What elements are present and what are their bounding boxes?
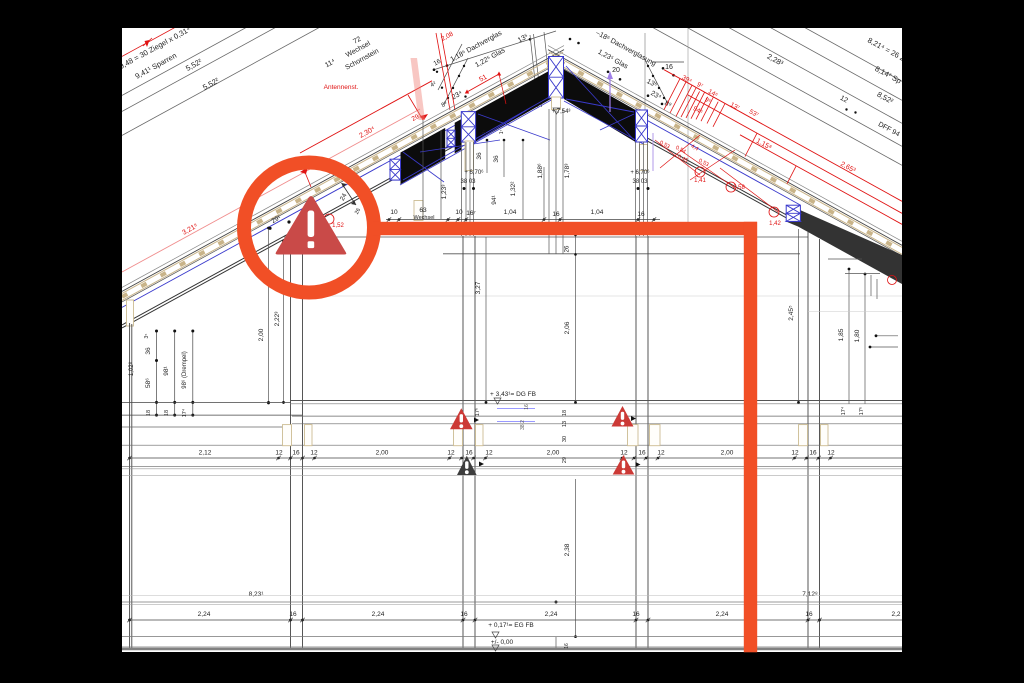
svg-text:26: 26 — [565, 245, 571, 252]
svg-text:10: 10 — [390, 209, 398, 216]
svg-text:+ 3,43¹= DG FB: + 3,43¹= DG FB — [490, 391, 536, 398]
svg-text:63: 63 — [419, 207, 427, 214]
svg-text:1,52: 1,52 — [332, 223, 344, 229]
svg-text:1,88⁶: 1,88⁶ — [537, 163, 544, 179]
svg-text:16: 16 — [805, 611, 813, 618]
svg-text:3,27: 3,27 — [475, 281, 482, 294]
svg-text:36: 36 — [493, 155, 500, 163]
svg-text:2,2: 2,2 — [891, 611, 900, 618]
svg-text:16: 16 — [638, 450, 646, 457]
svg-text:1,42: 1,42 — [769, 221, 781, 227]
svg-text:1,23³: 1,23³ — [441, 184, 448, 200]
svg-text:98⁶ (Drempel): 98⁶ (Drempel) — [181, 351, 188, 388]
svg-text:2,00: 2,00 — [721, 450, 734, 457]
svg-text:8,23¹: 8,23¹ — [249, 591, 265, 598]
svg-text:2,00: 2,00 — [376, 450, 389, 457]
svg-text:+ 6,70⁶: + 6,70⁶ — [464, 169, 484, 176]
svg-text:Antennenst.: Antennenst. — [324, 84, 359, 91]
svg-text:1,32²: 1,32² — [510, 181, 517, 197]
svg-text:16: 16 — [809, 450, 817, 457]
svg-text:12: 12 — [310, 450, 318, 457]
svg-text:16: 16 — [524, 404, 530, 410]
svg-text:2,00: 2,00 — [547, 450, 560, 457]
svg-text:2,22³: 2,22³ — [274, 311, 281, 327]
svg-text:1,80: 1,80 — [854, 329, 861, 342]
svg-text:16: 16 — [564, 643, 570, 649]
svg-text:2,24: 2,24 — [198, 611, 211, 618]
svg-text:16: 16 — [637, 211, 645, 218]
svg-text:12: 12 — [447, 450, 455, 457]
svg-text:38 2: 38 2 — [520, 420, 526, 430]
svg-text:16: 16 — [289, 611, 297, 618]
svg-text:16: 16 — [552, 211, 560, 218]
svg-text:1⁷: 1⁷ — [499, 130, 505, 135]
svg-text:+ 0,17¹= EG FB: + 0,17¹= EG FB — [488, 622, 534, 629]
svg-text:38 03: 38 03 — [632, 179, 648, 185]
svg-text:29: 29 — [562, 457, 568, 463]
svg-text:2,24: 2,24 — [545, 611, 558, 618]
svg-text:16: 16 — [460, 611, 468, 618]
svg-text:36: 36 — [476, 152, 483, 160]
svg-text:17⁶: 17⁶ — [474, 408, 481, 416]
svg-text:16: 16 — [665, 64, 673, 71]
svg-text:18: 18 — [562, 410, 568, 416]
svg-text:12: 12 — [827, 450, 835, 457]
svg-text:Wechsel: Wechsel — [414, 215, 435, 221]
svg-text:1,78³: 1,78³ — [564, 163, 571, 179]
svg-text:12: 12 — [620, 450, 628, 457]
svg-text:2,06: 2,06 — [564, 321, 571, 334]
svg-text:16: 16 — [292, 450, 300, 457]
svg-text:98¹: 98¹ — [163, 365, 170, 375]
svg-text:2,24: 2,24 — [372, 611, 385, 618]
svg-text:17⁶: 17⁶ — [858, 407, 865, 415]
svg-text:1⁷: 1⁷ — [482, 130, 488, 135]
svg-text:12: 12 — [485, 450, 493, 457]
svg-text:2,38: 2,38 — [564, 543, 571, 556]
svg-text:2,12: 2,12 — [199, 450, 212, 457]
svg-text:+/- 0,00: +/- 0,00 — [491, 639, 514, 646]
svg-text:1,04: 1,04 — [591, 209, 604, 216]
svg-text:94¹: 94¹ — [491, 194, 498, 204]
svg-text:30: 30 — [562, 436, 568, 442]
svg-text:16: 16 — [465, 450, 473, 457]
svg-text:38 03: 38 03 — [460, 179, 476, 185]
svg-text:12: 12 — [275, 450, 283, 457]
svg-text:2,24: 2,24 — [716, 611, 729, 618]
svg-text:1,85: 1,85 — [838, 328, 845, 341]
svg-text:12: 12 — [657, 450, 665, 457]
svg-text:16⁷: 16⁷ — [466, 210, 476, 217]
svg-text:1,41: 1,41 — [694, 178, 706, 184]
svg-text:13: 13 — [562, 421, 568, 427]
svg-text:7,12⁸: 7,12⁸ — [802, 591, 818, 598]
svg-text:2,45⁵: 2,45⁵ — [788, 305, 795, 321]
svg-text:3⁵: 3⁵ — [144, 334, 150, 339]
svg-text:16: 16 — [632, 611, 640, 618]
svg-text:1,04: 1,04 — [504, 209, 517, 216]
svg-text:10: 10 — [455, 209, 463, 216]
svg-text:20: 20 — [612, 67, 620, 74]
svg-text:17⁴: 17⁴ — [181, 408, 188, 417]
svg-text:12: 12 — [791, 450, 799, 457]
svg-text:2,00: 2,00 — [258, 328, 265, 341]
svg-text:+ 6,70⁶: + 6,70⁶ — [630, 169, 650, 176]
svg-text:17⁴: 17⁴ — [840, 406, 847, 415]
svg-text:58⁶: 58⁶ — [145, 378, 152, 388]
svg-text:1,02⁸: 1,02⁸ — [128, 361, 135, 376]
svg-text:36: 36 — [145, 347, 152, 355]
